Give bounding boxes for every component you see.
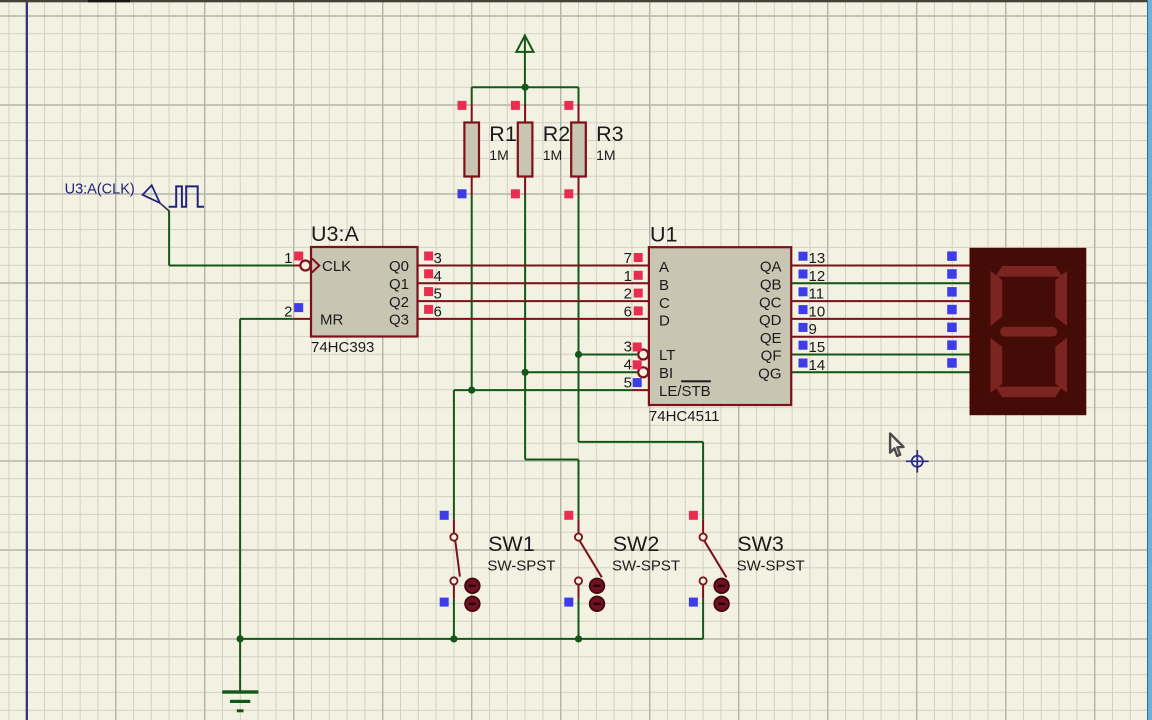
svg-text:11: 11 xyxy=(809,286,825,303)
svg-text:SW-SPST: SW-SPST xyxy=(487,558,555,575)
svg-text:SW-SPST: SW-SPST xyxy=(737,558,805,575)
svg-text:10: 10 xyxy=(809,303,826,320)
svg-text:Q2: Q2 xyxy=(389,294,409,311)
svg-text:4: 4 xyxy=(624,357,632,374)
svg-text:R1: R1 xyxy=(489,122,516,146)
svg-text:MR: MR xyxy=(320,312,343,329)
svg-text:14: 14 xyxy=(809,357,826,374)
svg-text:15: 15 xyxy=(809,339,826,356)
svg-text:2: 2 xyxy=(284,303,292,320)
svg-text:5: 5 xyxy=(624,374,632,391)
svg-text:5: 5 xyxy=(434,286,442,303)
svg-text:1: 1 xyxy=(624,268,632,285)
svg-text:LE/STB: LE/STB xyxy=(659,383,711,400)
svg-text:B: B xyxy=(659,277,669,294)
svg-text:1M: 1M xyxy=(596,147,615,163)
svg-text:QA: QA xyxy=(760,259,782,276)
svg-text:74HC393: 74HC393 xyxy=(311,339,374,356)
svg-text:2: 2 xyxy=(624,286,632,303)
svg-text:QD: QD xyxy=(759,312,782,329)
svg-text:1M: 1M xyxy=(489,147,508,163)
svg-text:SW1: SW1 xyxy=(488,532,535,556)
svg-text:QF: QF xyxy=(761,348,782,365)
svg-text:3: 3 xyxy=(434,250,442,267)
svg-text:Q3: Q3 xyxy=(389,312,409,329)
svg-text:QG: QG xyxy=(758,366,781,383)
svg-text:C: C xyxy=(659,295,670,312)
svg-text:Q0: Q0 xyxy=(389,258,409,275)
svg-text:A: A xyxy=(659,259,669,276)
svg-text:1: 1 xyxy=(284,250,292,267)
svg-text:D: D xyxy=(659,313,670,330)
svg-text:U3:A: U3:A xyxy=(311,222,359,246)
svg-text:SW-SPST: SW-SPST xyxy=(612,558,680,575)
svg-text:74HC4511: 74HC4511 xyxy=(649,408,720,425)
svg-text:12: 12 xyxy=(809,268,826,285)
svg-text:1M: 1M xyxy=(543,147,562,163)
svg-text:13: 13 xyxy=(809,250,826,267)
svg-text:9: 9 xyxy=(809,321,817,338)
svg-text:U3:A(CLK): U3:A(CLK) xyxy=(65,181,135,197)
svg-text:R2: R2 xyxy=(543,122,570,146)
svg-text:SW3: SW3 xyxy=(737,532,784,556)
svg-text:7: 7 xyxy=(624,250,632,267)
svg-text:6: 6 xyxy=(624,303,632,320)
svg-text:QB: QB xyxy=(760,277,782,294)
svg-text:6: 6 xyxy=(434,303,442,320)
svg-text:LT: LT xyxy=(659,347,675,364)
svg-text:4: 4 xyxy=(434,268,442,285)
svg-text:SW2: SW2 xyxy=(613,532,660,556)
svg-text:BI: BI xyxy=(659,365,673,382)
svg-text:R3: R3 xyxy=(596,122,624,146)
svg-text:CLK: CLK xyxy=(322,258,351,275)
svg-text:Q1: Q1 xyxy=(389,276,409,293)
svg-text:3: 3 xyxy=(624,339,632,356)
svg-text:QE: QE xyxy=(760,330,782,347)
svg-text:U1: U1 xyxy=(650,223,677,247)
svg-text:QC: QC xyxy=(759,294,782,311)
